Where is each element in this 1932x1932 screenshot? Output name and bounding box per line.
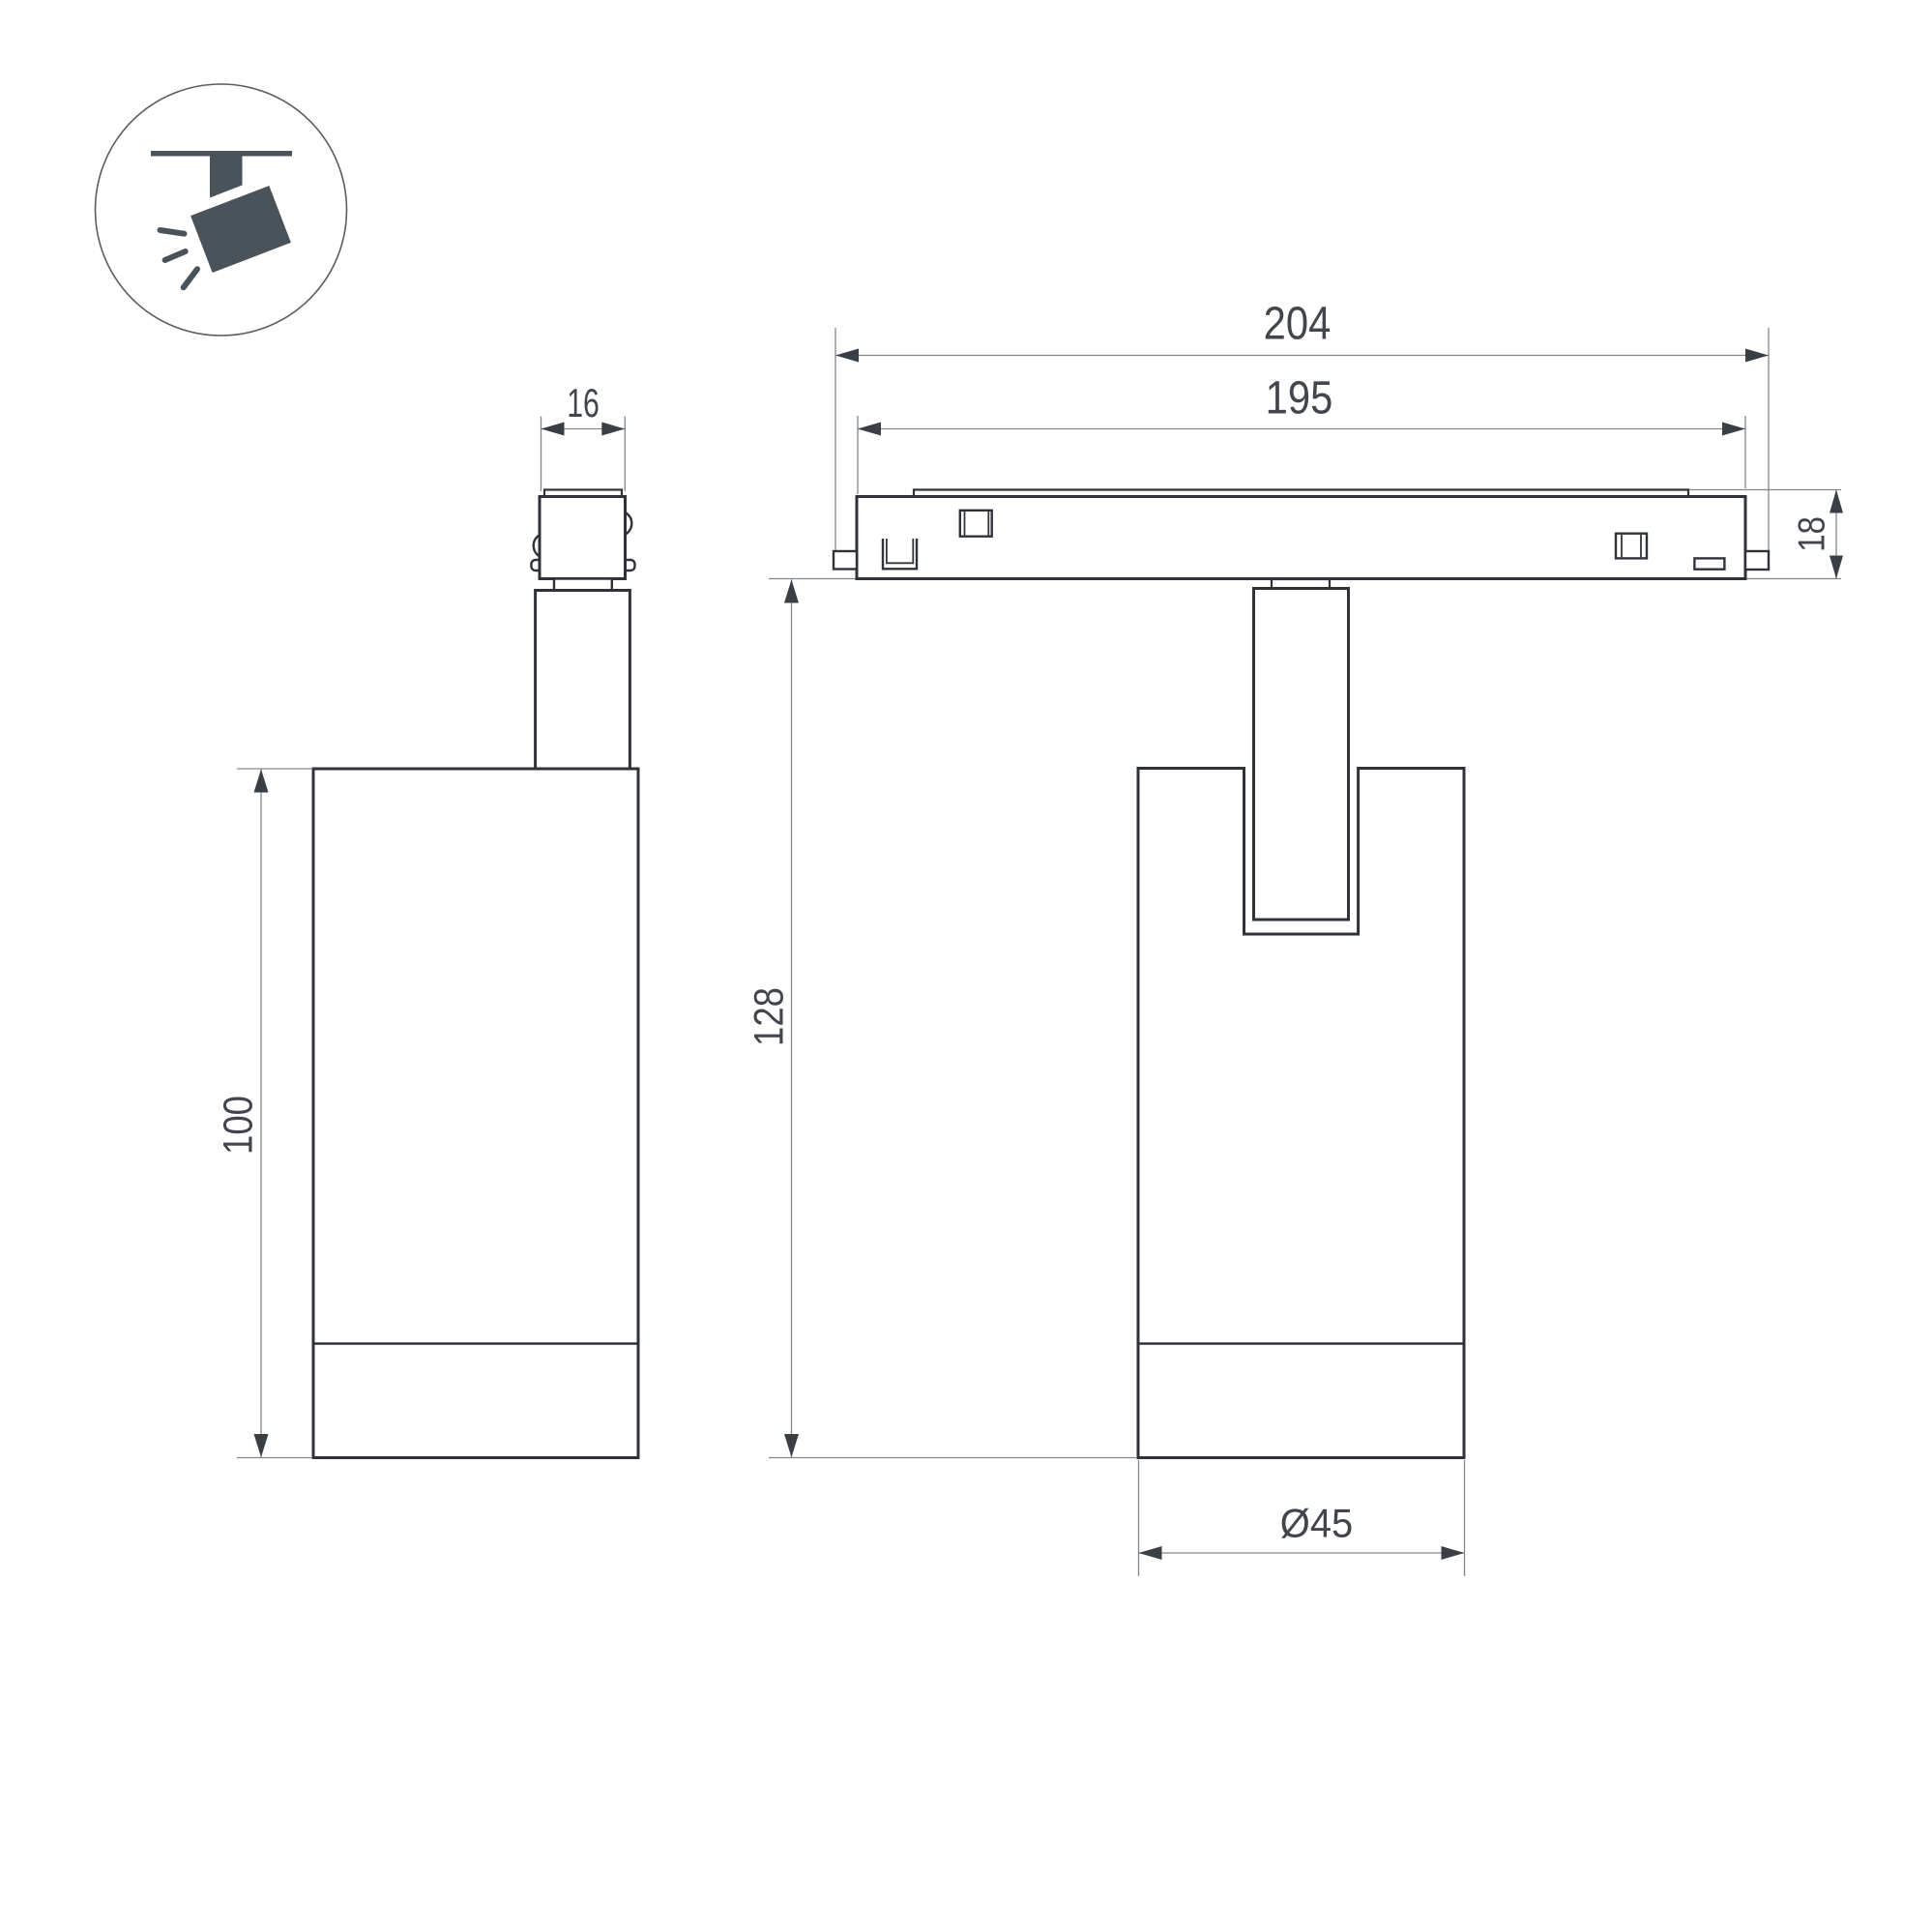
svg-text:128: 128 (746, 987, 792, 1046)
svg-text:16: 16 (567, 380, 600, 425)
svg-text:195: 195 (1266, 371, 1333, 424)
svg-text:100: 100 (216, 1096, 261, 1155)
svg-text:204: 204 (1264, 297, 1332, 349)
svg-text:18: 18 (1790, 516, 1832, 552)
svg-text:Ø45: Ø45 (1280, 1501, 1353, 1546)
